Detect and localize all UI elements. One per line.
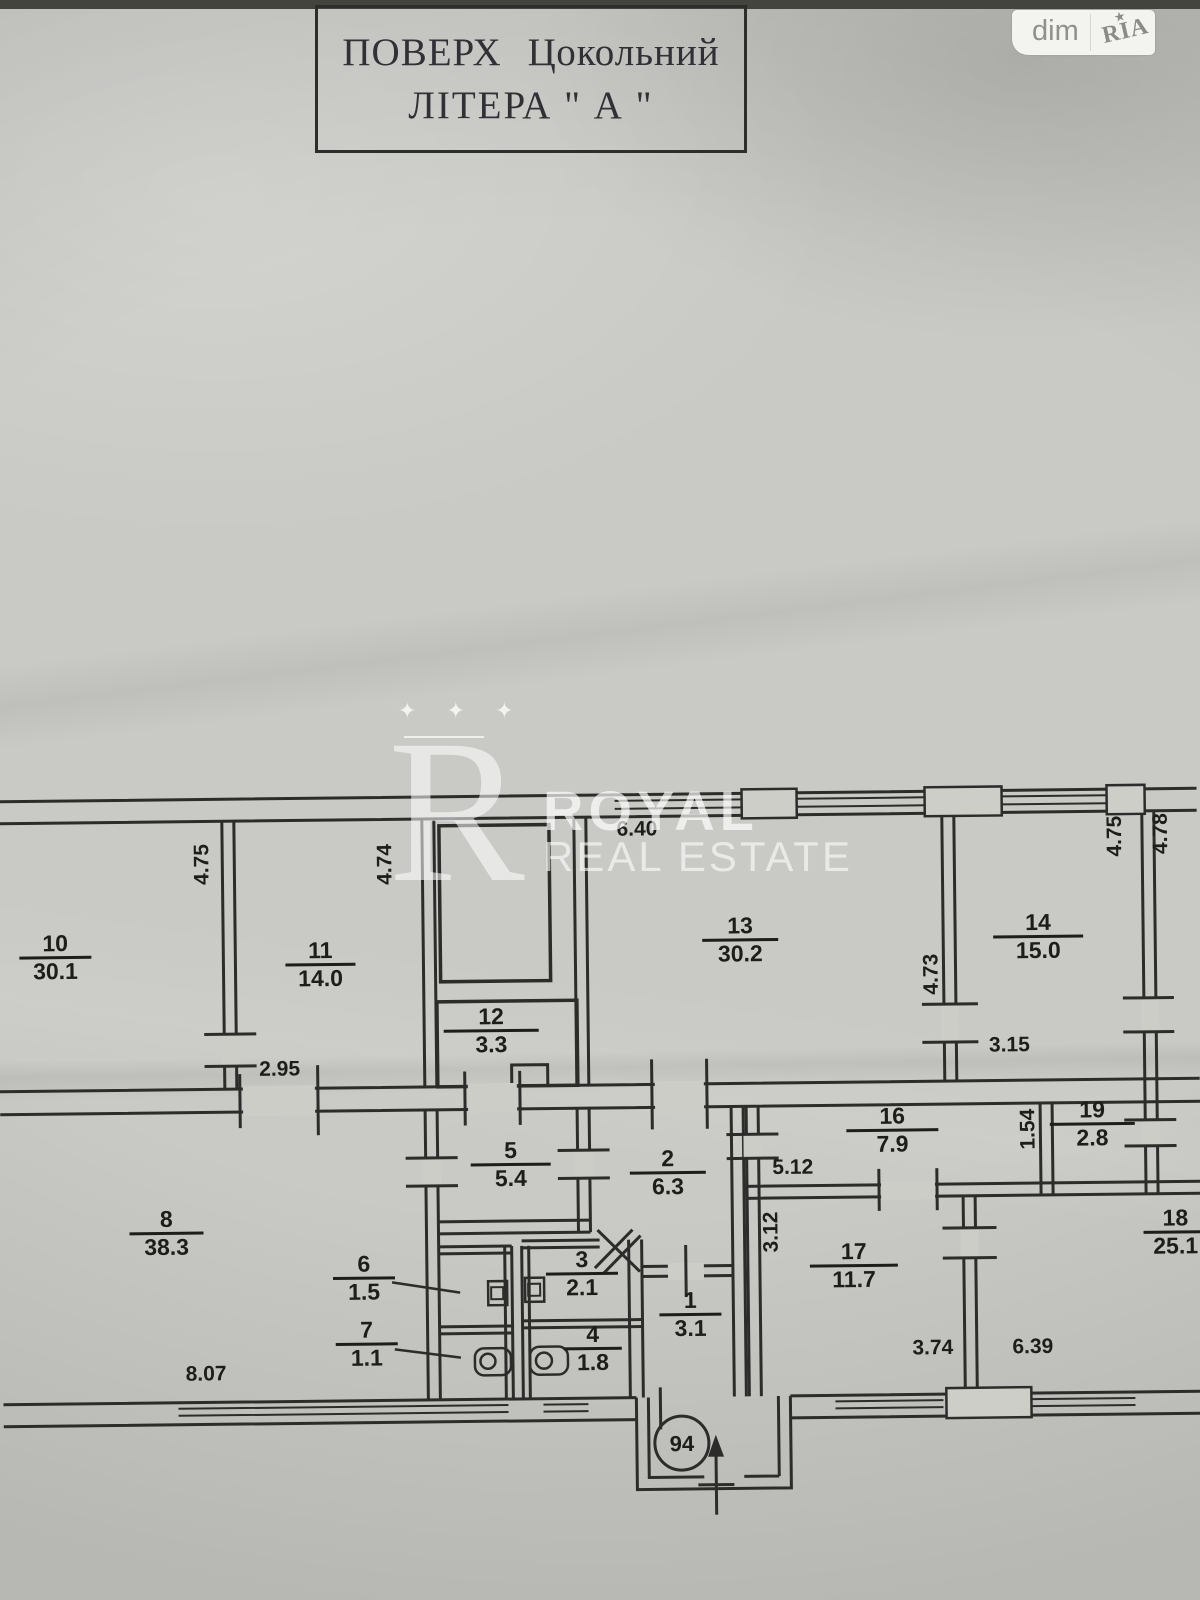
dimension-6.39-room18: 6.39 [1012, 1335, 1053, 1359]
room-label-10: 1030.1 [19, 932, 92, 985]
room-label-2: 26.3 [630, 1147, 707, 1200]
room-label-11: 1114.0 [285, 939, 356, 992]
wall-8-right [425, 1110, 440, 1400]
room-label-1: 13.1 [659, 1289, 722, 1342]
dimension-5.12-room16: 5.12 [772, 1156, 813, 1180]
dimension-3.12-room17: 3.12 [759, 1211, 783, 1252]
room-label-12: 123.3 [443, 1005, 539, 1058]
room-12-notch [512, 1065, 548, 1086]
dimension-3.15-room14: 3.15 [989, 1033, 1030, 1057]
floor-plan: 94 1030.1 1114.0 123.3 1330.2 1415.0 838… [0, 0, 1200, 1600]
dimension-4.75-room14: 4.75 [1103, 816, 1127, 857]
dimension-3.74-room17: 3.74 [912, 1336, 953, 1360]
dimension-4.78-right: 4.78 [1149, 813, 1173, 854]
pier [1106, 785, 1144, 814]
dimension-8.07-room8: 8.07 [186, 1362, 227, 1386]
top-outer-wall [0, 788, 1197, 824]
sink-basin-room6 [491, 1287, 503, 1299]
wall-17-18 [963, 1196, 977, 1394]
wall-67-right [505, 1246, 514, 1399]
dimension-4.75-room10: 4.75 [190, 844, 214, 885]
room-label-8: 838.3 [129, 1208, 204, 1261]
dimension-4.73-wall13-14: 4.73 [919, 954, 943, 995]
top-windows [615, 795, 1107, 809]
pier [924, 786, 1001, 816]
room-label-18: 1825.1 [1143, 1206, 1200, 1259]
dimension-4.74-room11: 4.74 [373, 844, 397, 885]
toilet-bowl-room7 [480, 1354, 495, 1369]
wall-11-corridor [422, 819, 437, 1087]
room-5-bottom-wall [438, 1220, 590, 1234]
room-label-14: 1415.0 [993, 911, 1084, 964]
stair-box [439, 825, 551, 982]
room-label-4: 41.8 [564, 1323, 623, 1376]
room-label-6: 61.5 [333, 1252, 396, 1305]
toilet-bowl-room4 [536, 1353, 552, 1369]
scanned-floor-plan-page: ПОВЕРХЦокольний ЛІТЕРА " А " dim ★ RIA [0, 0, 1200, 1600]
room-label-7: 71.1 [335, 1318, 398, 1371]
room-label-17: 1711.7 [810, 1240, 899, 1293]
pier [741, 789, 796, 819]
room-label-5: 55.4 [470, 1139, 551, 1192]
room-label-13: 1330.2 [702, 914, 779, 967]
room-16-bottom-wall [747, 1181, 1200, 1198]
room-label-16: 167.9 [846, 1104, 939, 1157]
dimension-1.54-room16: 1.54 [1016, 1109, 1040, 1150]
room-label-19: 192.8 [1050, 1098, 1136, 1151]
room-label-3: 32.1 [546, 1248, 619, 1301]
dimension-6.40-room13: 6.40 [616, 817, 657, 841]
dimension-2.95-room10: 2.95 [259, 1057, 300, 1081]
entrance-number: 94 [670, 1431, 696, 1456]
pier [946, 1387, 1031, 1418]
entrance-arrow-shaft [716, 1451, 717, 1515]
